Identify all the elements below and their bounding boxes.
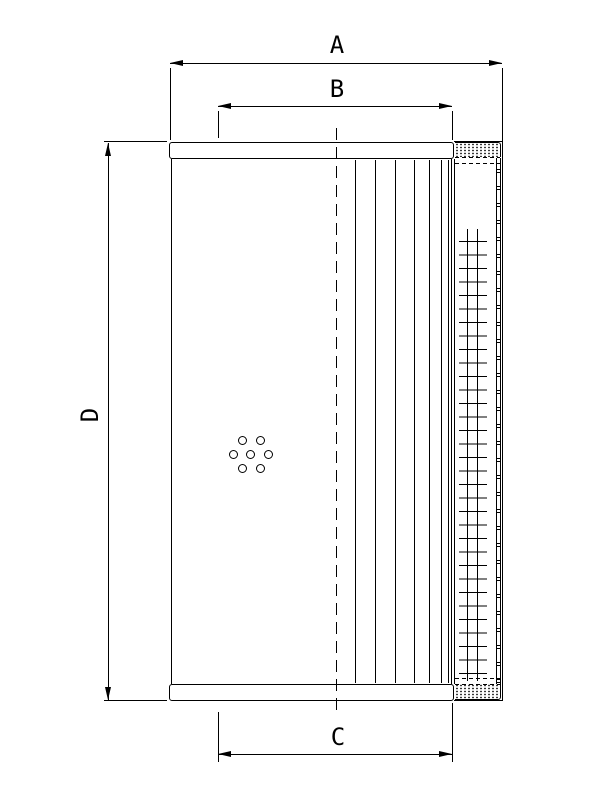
dim-a-line: [170, 63, 502, 64]
dim-d-ext-bottom: [104, 700, 167, 701]
pleat-line: [429, 160, 430, 683]
pleat-line: [448, 160, 449, 683]
dim-b-ext-right: [452, 111, 453, 140]
dim-b-arrow-right-icon: [439, 103, 452, 109]
perforation-hole: [229, 450, 238, 459]
dim-a-arrow-left-icon: [170, 60, 183, 66]
dim-c-ext-right: [452, 703, 453, 762]
dim-c-arrow-left-icon: [218, 751, 231, 757]
perforation-hole: [264, 450, 273, 459]
perforation-hole: [238, 436, 247, 445]
filter-top-cap: [169, 142, 454, 159]
dim-b-arrow-left-icon: [218, 103, 231, 109]
seal-bottom-dashed-edge: [455, 684, 500, 685]
inner-wall-line: [454, 159, 455, 684]
dim-c-arrow-right-icon: [439, 751, 452, 757]
end-cap-seal-top: [455, 142, 501, 157]
pleat-line: [414, 160, 415, 683]
end-cap-seal-bottom: [455, 684, 501, 700]
filter-body-left-edge: [171, 159, 172, 684]
pleat-line: [395, 160, 396, 683]
filter-bottom-cap: [169, 684, 454, 701]
center-axis-line: [336, 128, 337, 712]
dim-d-arrow-bottom-icon: [105, 687, 111, 700]
dim-a-arrow-right-icon: [489, 60, 502, 66]
dim-a-ext-left: [170, 68, 171, 140]
dim-a-ext-right: [502, 68, 503, 141]
dim-d-label: D: [78, 402, 102, 428]
pleat-line: [375, 160, 376, 683]
dim-b-ext-left: [218, 111, 219, 138]
pleat-line: [355, 160, 356, 683]
dim-d-line: [108, 143, 109, 700]
perforation-hole: [246, 450, 255, 459]
outer-mesh-wall: [496, 158, 501, 684]
dim-d-arrow-top-icon: [105, 143, 111, 156]
seal-top-dashed-edge: [455, 157, 500, 158]
perforation-hole: [256, 464, 265, 473]
pleat-line: [441, 160, 442, 683]
dim-d-ext-top: [104, 141, 167, 142]
support-core-rungs: [459, 241, 487, 678]
technical-drawing: A B C D: [0, 0, 612, 792]
filter-body-right-edge: [451, 159, 452, 684]
dim-c-label: C: [325, 725, 351, 749]
dim-a-label: A: [324, 33, 350, 57]
seal-top-dashed-line: [455, 163, 500, 164]
perforation-hole: [256, 436, 265, 445]
outer-shell-edge: [502, 141, 503, 701]
perforation-hole: [238, 464, 247, 473]
dim-b-line: [218, 106, 452, 107]
dim-c-line: [218, 754, 452, 755]
dim-b-label: B: [324, 77, 350, 101]
shell-bottom-edge: [454, 700, 503, 701]
